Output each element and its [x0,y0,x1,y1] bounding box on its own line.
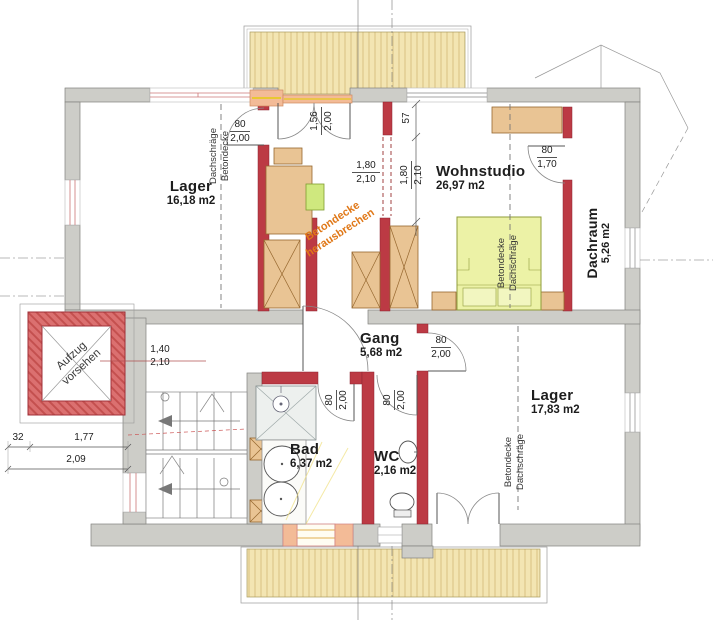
toilet [390,493,414,517]
dim-lager2-door: 80 2,00 [423,335,459,361]
floorplan-drawing [0,0,713,620]
dim-hall-opening: 1,40 2,10 [138,344,182,369]
cabinet-x-2 [352,252,380,308]
dim-ext-209: 2,09 [54,454,98,465]
nightstand-left [432,292,456,310]
dim-bad-door: 80 2,00 [324,378,350,422]
shower [256,386,316,440]
dim-ext-32: 32 [7,432,29,443]
nightstand-right [540,292,564,310]
cabinet-x-3 [390,226,418,308]
floor-plan: Lager 16,18 m2 Wohnstudio 26,97 m2 Dachr… [0,0,713,620]
stairs [128,392,247,518]
pillow-left [463,288,496,306]
chair-top [274,148,302,164]
dim-ext-177: 1,77 [62,432,106,443]
desk [266,166,312,234]
terrace-hatch [241,547,547,603]
room-label-gang: Gang 5,68 m2 [360,330,430,360]
dim-dachraum-door: 80 1,70 [529,145,565,171]
dim-lager-door: 80 2,00 [223,119,257,145]
annotation-roof-lager: Betondecke Dachschräge [503,407,529,517]
annotation-roof-wohnstudio: Betondecke Dachschräge [496,208,522,318]
dim-wall-57: 57 [401,103,415,133]
dim-wc-door: 80 2,00 [382,378,408,422]
chair-green [306,184,324,210]
dim-opening-side: 1,80 2,10 [399,153,425,197]
dim-opening-front: 1,80 2,10 [348,160,384,186]
room-label-lager-bottom: Lager 17,83 m2 [531,387,611,417]
room-label-wc: WC 2,16 m2 [374,448,434,478]
annotation-roof-left: Dachschräge Betondecke [208,101,234,211]
dim-balcony-door: 1,56 2,00 [309,99,335,143]
room-label-bad: Bad 6,37 m2 [290,441,350,471]
room-label-dachraum: Dachraum 5,26 m2 [584,178,618,308]
wardrobe [492,107,562,133]
